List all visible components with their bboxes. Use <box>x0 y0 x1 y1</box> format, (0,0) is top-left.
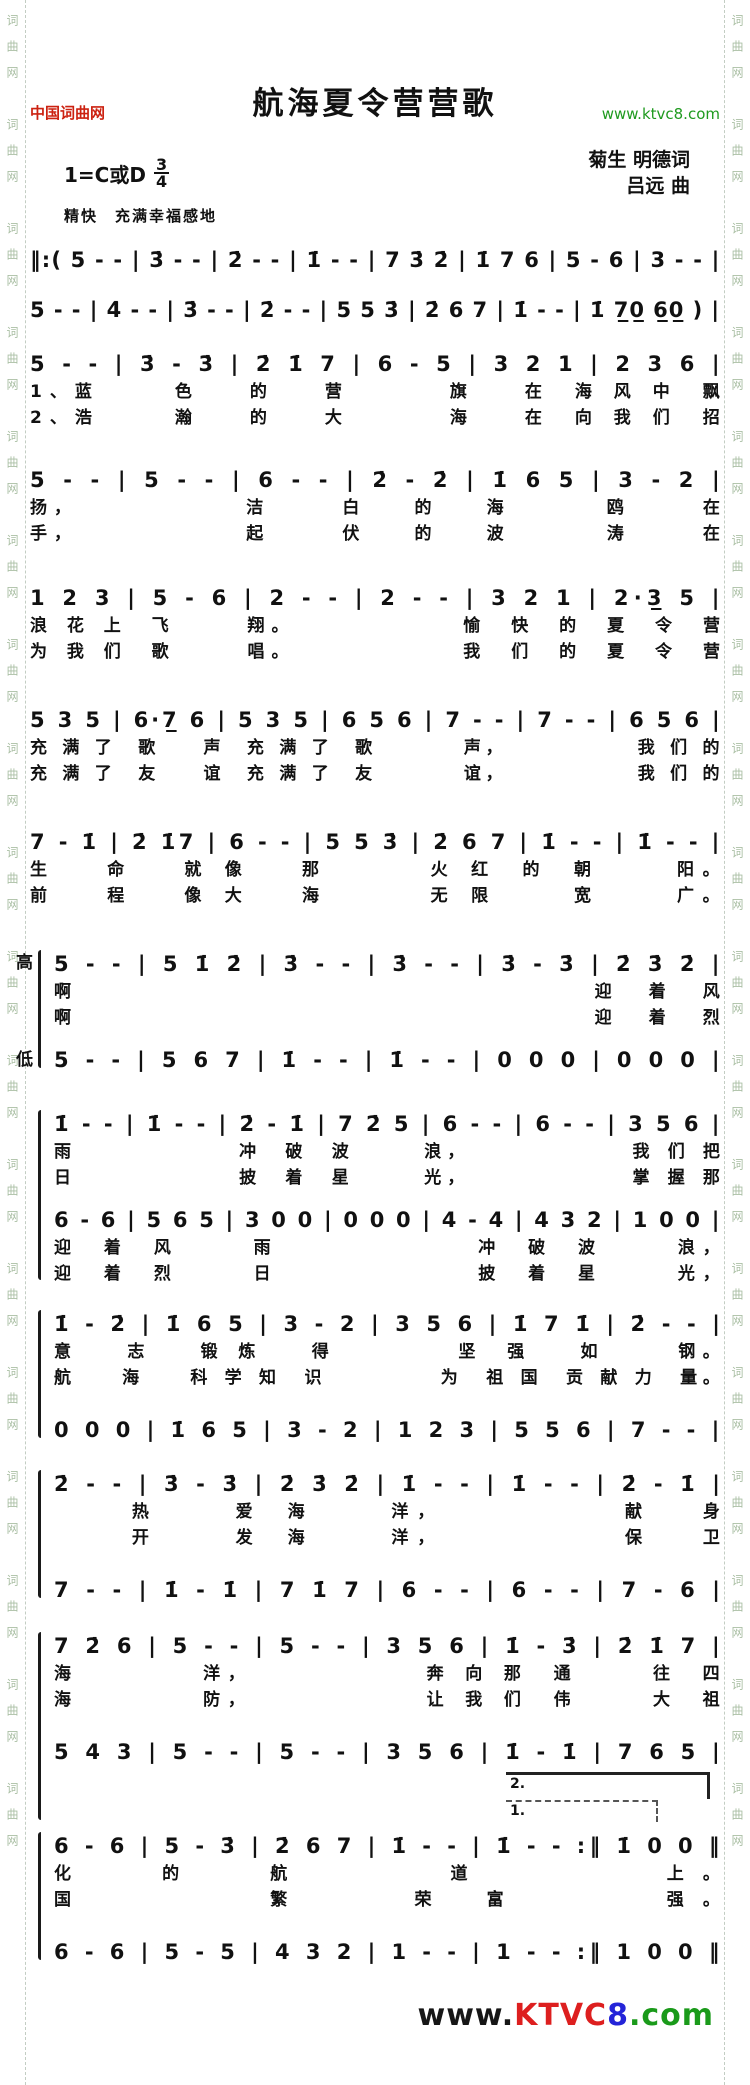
high-voice-label: 高 <box>16 948 36 973</box>
right-rail-text: 词曲网 词曲网 词曲网 词曲网 词曲网 词曲网 词曲网 词曲网 词曲网 词曲网 … <box>730 14 744 1860</box>
notation-line-s13: 7 - - | 1̇ - 1̇ | 7 1̇ 7 | 6 - - | 6 - -… <box>54 1572 720 1602</box>
system-3: 5 - - | 3̇ - 3̇ | 2̇ 1̇ 7 | 6 - 5 | 3 2 … <box>30 346 720 428</box>
volta-second-label: 2. <box>510 1776 525 1792</box>
footer-logo: www.KTVC8.com <box>30 1998 720 2033</box>
system-2: 5 - - | 4̇ - - | 3̇ - - | 2̇ - - | 5 5 3… <box>30 292 720 322</box>
low-voice-label: 低 <box>16 1045 36 1070</box>
notation-line-s17: 6 - 6 | 5 - 5 | 4 3 2 | 1 - - | 1 - - :‖… <box>54 1934 720 1964</box>
key-signature: 1=C或D <box>64 159 146 188</box>
lyric-line-s5-v2: 为 我 们 歌 唱。 我 们 的 夏 令 营 <box>30 636 720 662</box>
choir-group-1: 高 低 5 - - | 5 1̇ 2̇ | 3̇ - - | 3̇ - - | … <box>30 946 720 1072</box>
notation-line-s3: 5 - - | 3̇ - 3̇ | 2̇ 1̇ 7 | 6 - 5 | 3 2 … <box>30 346 720 376</box>
time-signature-bottom: 4 <box>156 174 167 189</box>
choir-group-4: 2̇ - - | 3̇ - 3̇ | 2̇ 3̇ 2̇ | 1̇ - - | 1… <box>30 1466 720 1602</box>
meta-row: 1=C或D 3 4 菊生 明德词 吕远 曲 <box>30 147 720 199</box>
volta-first-label: 1. <box>510 1803 525 1819</box>
system-5: 1 2 3 | 5 - 6 | 2 - - | 2 - - | 3 2 1 | … <box>30 580 720 662</box>
lyric-line-s9-low-v2: 迎 着 烈 日 披 着 星 光， <box>54 1258 720 1284</box>
lyric-line-s12-v1: 热 爱 海 洋， 献 身 <box>54 1496 720 1522</box>
footer-logo-com: .com <box>629 1998 714 2033</box>
tempo-marking: 精快 充满幸福感地 <box>30 205 720 226</box>
notation-line-s15: 5 4 3 | 5 - - | 5 - - | 3 5 6 | 1̇ - 1̇ … <box>54 1734 720 1764</box>
notation-line-s9-low: 6 - 6 | 5 6 5 | 3 0 0 | 0 0 0 | 4 - 4 | … <box>54 1202 720 1232</box>
left-margin-rail: 词曲网 词曲网 词曲网 词曲网 词曲网 词曲网 词曲网 词曲网 词曲网 词曲网 … <box>0 0 26 2085</box>
sheet-content: 中国词曲网 航海夏令营营歌 www.ktvc8.com 1=C或D 3 4 菊生… <box>30 0 720 2033</box>
time-signature: 3 4 <box>154 157 169 189</box>
system-7: 7 - 1̇ | 2̇ 1̇7 | 6 - - | 5 5 3̇ | 2̇ 6 … <box>30 824 720 906</box>
site-name-left: 中国词曲网 <box>30 102 180 123</box>
left-rail-text: 词曲网 词曲网 词曲网 词曲网 词曲网 词曲网 词曲网 词曲网 词曲网 词曲网 … <box>5 14 19 1860</box>
composer: 吕远 曲 <box>588 173 690 199</box>
lyric-line-s4-v1: 扬， 洁 白 的 海 鸥 在 <box>30 492 720 518</box>
system-4: 5 - - | 5 - - | 6 - - | 2̇ - 2̇ | 1̇ 6 5… <box>30 462 720 544</box>
volta-first-ending: 1. <box>506 1800 658 1822</box>
lyric-line-s4-v2: 手， 起 伏 的 波 涛 在 <box>30 518 720 544</box>
lyric-line-s14-v1: 海 洋， 奔 向 那 通 往 四 <box>54 1658 720 1684</box>
lyric-line-s7-v1: 生 命 就 像 那 火 红 的 朝 阳。 <box>30 854 720 880</box>
notation-line-s11: 0 0 0 | 1̇ 6 5 | 3 - 2 | 1 2 3 | 5 5 6 |… <box>54 1412 720 1442</box>
lyricist: 菊生 明德词 <box>588 147 690 173</box>
footer-logo-ktvc: KTVC <box>514 1998 607 2033</box>
system-1: ‖:( 5 - - | 3̇ - - | 2̇ - - | 1̇ - - | 7… <box>30 242 720 272</box>
lyric-line-s9-high-v2: 日 披 着 星 光， 掌 握 那 <box>54 1162 720 1188</box>
lyric-line-s5-v1: 浪 花 上 飞 翔。 愉 快 的 夏 令 营 <box>30 610 720 636</box>
choir-group-5: 7 2̇ 6 | 5 - - | 5 - - | 3 5 6 | 1̇ - 3̇… <box>30 1628 720 1824</box>
volta-brackets: 2. 1. <box>54 1770 720 1824</box>
credits: 菊生 明德词 吕远 曲 <box>588 147 690 199</box>
choir-group-2: 1̇ - - | 1̇ - - | 2̇ - 1̇ | 7 2̇ 5 | 6 -… <box>30 1106 720 1284</box>
lyric-line-s6-v2: 充 满 了 友 谊 充 满 了 友 谊， 我 们 的 <box>30 758 720 784</box>
notation-line-s9-high: 1̇ - - | 1̇ - - | 2̇ - 1̇ | 7 2̇ 5 | 6 -… <box>54 1106 720 1136</box>
notation-line-s5: 1 2 3 | 5 - 6 | 2 - - | 2 - - | 3 2 1 | … <box>30 580 720 610</box>
lyric-line-s3-v1: 1、蓝 色 的 营 旗 在 海 风 中 飘 <box>30 376 720 402</box>
lyric-line-s10-v2: 航 海 科 学 知 识 为 祖 国 贡 献 力 量。 <box>54 1362 720 1388</box>
lyric-line-s12-v2: 开 发 海 洋， 保 卫 <box>54 1522 720 1548</box>
choir-group-6: 6 - 6 | 5 - 3̇ | 2̇ 6 7 | 1̇ - - | 1̇ - … <box>30 1828 720 1964</box>
volta-second-ending: 2. <box>506 1772 710 1799</box>
notation-line-s8-low: 5 - - | 5 6 7 | 1̇ - - | 1̇ - - | 0 0 0 … <box>54 1042 720 1072</box>
system-6: 5 3 5 | 6·7̲ 6 | 5 3 5 | 6 5 6 | 7 - - |… <box>30 702 720 784</box>
key-time-signature: 1=C或D 3 4 <box>64 147 169 199</box>
song-title: 航海夏令营营歌 <box>180 78 570 123</box>
footer-logo-www: www. <box>417 1998 514 2033</box>
lyric-line-s3-v2: 2、浩 瀚 的 大 海 在 向 我 们 招 <box>30 402 720 428</box>
site-url-right: www.ktvc8.com <box>570 105 720 123</box>
lyric-line-s16-v2: 国 繁 荣 富 强。 <box>54 1884 720 1910</box>
lyric-line-s9-high-v1: 雨 冲 破 波 浪， 我 们 把 <box>54 1136 720 1162</box>
right-margin-rail: 词曲网 词曲网 词曲网 词曲网 词曲网 词曲网 词曲网 词曲网 词曲网 词曲网 … <box>724 0 750 2085</box>
footer-logo-8: 8 <box>607 1998 629 2033</box>
lyric-line-s9-low-v1: 迎 着 风 雨 冲 破 波 浪， <box>54 1232 720 1258</box>
lyric-line-s8-v2: 啊 迎 着 烈 <box>54 1002 720 1028</box>
notation-line-s16: 6 - 6 | 5 - 3̇ | 2̇ 6 7 | 1̇ - - | 1̇ - … <box>54 1828 720 1858</box>
lyric-line-s8-v1: 啊 迎 着 风 <box>54 976 720 1002</box>
notation-line-s1: ‖:( 5 - - | 3̇ - - | 2̇ - - | 1̇ - - | 7… <box>30 242 720 272</box>
notation-line-s14: 7 2̇ 6 | 5 - - | 5 - - | 3 5 6 | 1̇ - 3̇… <box>54 1628 720 1658</box>
lyric-line-s6-v1: 充 满 了 歌 声 充 满 了 歌 声， 我 们 的 <box>30 732 720 758</box>
lyric-line-s10-v1: 意 志 锻 炼 得 坚 强 如 钢。 <box>54 1336 720 1362</box>
lyric-line-s16-v1: 化 的 航 道 上。 <box>54 1858 720 1884</box>
notation-line-s10: 1̇ - 2̇ | 1̇ 6 5 | 3 - 2 | 3 5 6 | 1̇ 7 … <box>54 1306 720 1336</box>
notation-line-s2: 5 - - | 4̇ - - | 3̇ - - | 2̇ - - | 5 5 3… <box>30 292 720 322</box>
notation-line-s7: 7 - 1̇ | 2̇ 1̇7 | 6 - - | 5 5 3̇ | 2̇ 6 … <box>30 824 720 854</box>
notation-line-s4: 5 - - | 5 - - | 6 - - | 2̇ - 2̇ | 1̇ 6 5… <box>30 462 720 492</box>
header: 中国词曲网 航海夏令营营歌 www.ktvc8.com <box>30 0 720 123</box>
choir-group-3: 1̇ - 2̇ | 1̇ 6 5 | 3 - 2 | 3 5 6 | 1̇ 7 … <box>30 1306 720 1442</box>
notation-line-s6: 5 3 5 | 6·7̲ 6 | 5 3 5 | 6 5 6 | 7 - - |… <box>30 702 720 732</box>
notation-line-s12: 2̇ - - | 3̇ - 3̇ | 2̇ 3̇ 2̇ | 1̇ - - | 1… <box>54 1466 720 1496</box>
lyric-line-s7-v2: 前 程 像 大 海 无 限 宽 广。 <box>30 880 720 906</box>
sheet-music-page: 词曲网 词曲网 词曲网 词曲网 词曲网 词曲网 词曲网 词曲网 词曲网 词曲网 … <box>0 0 750 2085</box>
notation-line-s8-high: 5 - - | 5 1̇ 2̇ | 3̇ - - | 3̇ - - | 3̇ -… <box>54 946 720 976</box>
lyric-line-s14-v2: 海 防， 让 我 们 伟 大 祖 <box>54 1684 720 1710</box>
